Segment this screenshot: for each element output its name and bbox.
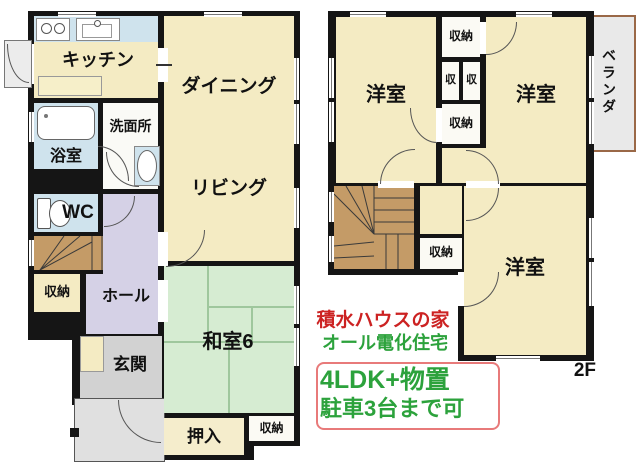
closet-small-right-label: 収 (463, 72, 480, 88)
room-label-bathroom: 浴室 (36, 147, 96, 167)
bathtub-icon (37, 106, 95, 140)
room-label-japanese-room: 和室6 (168, 330, 288, 354)
closet-hall-label: 収納 (420, 244, 462, 260)
window (329, 192, 334, 222)
burner-icon (41, 23, 52, 34)
window (589, 218, 594, 258)
room-label-west-nw: 洋室 (336, 83, 436, 107)
closet-top-label: 収納 (442, 28, 480, 44)
floor-plan-canvas: キッチン ダイニング リビング 洗面所 浴室 WC ホール 収納 玄関 和室6 … (0, 0, 640, 472)
room-label-entrance: 玄関 (98, 354, 162, 374)
window (294, 188, 299, 228)
feature-line1: 4LDK+物置 (320, 366, 492, 394)
room-label-washroom: 洗面所 (103, 117, 158, 135)
headline-text: 積水ハウスの家 (308, 310, 458, 330)
room-label-kitchen: キッチン (40, 48, 156, 72)
window (350, 12, 386, 17)
window (516, 12, 552, 17)
window (329, 236, 334, 262)
room-label-oshiire: 押入 (164, 426, 244, 446)
veranda-label: ベランダ (592, 32, 626, 132)
room-dining-living (164, 16, 294, 261)
window (58, 12, 96, 17)
window (294, 58, 299, 100)
faucet-icon (94, 20, 101, 27)
window (496, 356, 540, 361)
room-label-dining: ダイニング (164, 74, 294, 98)
washbasin-bowl-icon (137, 150, 157, 182)
room-label-living: リビング (164, 176, 294, 200)
window (204, 12, 242, 17)
feature-line2: 駐車3台まで可 (320, 396, 492, 422)
room-label-west-s: 洋室 (464, 256, 586, 280)
subheadline-text: オール電化住宅 (312, 333, 458, 353)
window (294, 286, 299, 324)
room-label-west-ne: 洋室 (486, 83, 586, 107)
room-label-storage-south: 収納 (249, 419, 294, 437)
door-tick (156, 64, 172, 66)
room-label-wc: WC (58, 199, 98, 225)
hall-2f (420, 186, 462, 234)
porch-post (70, 428, 79, 437)
floor2-label: 2F (556, 360, 596, 380)
room-label-storage-under-stairs: 収納 (34, 282, 80, 300)
window (29, 112, 34, 142)
stairs-2f (334, 186, 414, 269)
window (294, 328, 299, 366)
drain-icon (44, 114, 48, 118)
kitchen-lower-counter (38, 76, 102, 96)
window (329, 58, 334, 98)
window (29, 240, 34, 266)
window (329, 102, 334, 142)
room-label-hall: ホール (90, 287, 162, 307)
closet-small-left-label: 収 (442, 72, 459, 88)
window (294, 104, 299, 144)
window (589, 262, 594, 306)
closet-mid-label: 収納 (442, 115, 480, 131)
burner-icon (54, 23, 65, 34)
